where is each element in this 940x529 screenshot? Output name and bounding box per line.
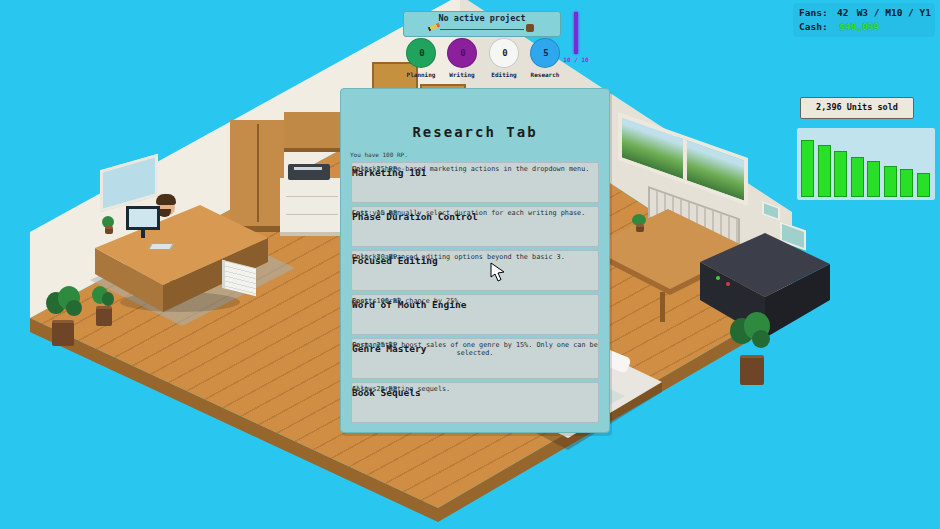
desk-plant-pot [105, 226, 113, 234]
phase-button-research[interactable]: 5 [530, 38, 560, 68]
phase-button-planning[interactable]: 0 [406, 38, 436, 68]
units-sold-label: 2,396 Units sold [801, 102, 913, 112]
research-item-cost: Cost: 25 RP [352, 385, 397, 393]
research-item-cost: Cost: 15 RP [352, 209, 397, 217]
mouse-cursor-icon [490, 262, 506, 282]
research-item-marketing-101[interactable]: Marketing 101 Unlocks hype-based marketi… [351, 162, 599, 203]
book-icon [526, 24, 534, 32]
project-title: No active project [403, 13, 561, 23]
phase-count: 0 [407, 48, 437, 58]
phase-button-editing[interactable]: 0 [489, 38, 519, 68]
sales-bar [801, 140, 814, 197]
phase-count: 0 [448, 48, 478, 58]
keyboard [148, 243, 174, 250]
cash-value: $40,039 [839, 21, 879, 32]
progress-track [440, 29, 524, 30]
table-plant-pot [636, 224, 644, 232]
research-panel-subtitle: You have 100 RP. [350, 151, 550, 158]
xp-bar [574, 12, 578, 54]
research-item-genre-mastery[interactable]: Genre Mastery Permanently boost sales of… [351, 338, 599, 379]
research-item-cost: Cost: 25 RP [352, 341, 397, 349]
research-item-book-sequels[interactable]: Book Sequels Allows creating sequels. Co… [351, 382, 599, 423]
research-item-word-of-mouth-engine[interactable]: Word of Mouth Engine Boosts viral chance… [351, 294, 599, 335]
plant-pot [740, 355, 764, 385]
research-item-cost: Cost: 25 RP [352, 165, 397, 173]
sales-bar [917, 173, 930, 197]
stats-hud: Fans: 42 W3 / M10 / Y1 Cash: $40,039 [793, 3, 935, 37]
sales-chart [797, 128, 935, 200]
research-item-cost: Cost: 100 RP [352, 297, 401, 305]
research-panel-title: Research Tab [340, 124, 610, 140]
date-display: W3 / M10 / Y1 [857, 7, 931, 18]
indicator-light [726, 282, 730, 286]
plant [66, 300, 82, 316]
sales-bar [851, 157, 864, 197]
monitor [126, 206, 160, 230]
phase-label-research: Research [517, 71, 573, 78]
character-hair [156, 194, 176, 205]
phase-count: 0 [490, 48, 520, 58]
fans-value: 42 [837, 7, 848, 18]
sales-bar [867, 161, 880, 197]
sales-bar [884, 166, 897, 197]
phase-button-writing[interactable]: 0 [447, 38, 477, 68]
wardrobe [230, 120, 284, 232]
research-item-phase-duration-control[interactable]: Phase Duration Control Lets you manually… [351, 206, 599, 247]
fans-label: Fans: [799, 7, 828, 18]
monitor-stand [141, 230, 145, 238]
sales-bar [818, 145, 831, 197]
research-item-cost: Cost: 20 RP [352, 253, 397, 261]
sales-bar [900, 169, 913, 197]
plant-pot [52, 320, 74, 346]
game-screen: No active project 0 Planning 0 Writing 0… [0, 0, 940, 529]
printer [288, 164, 330, 180]
units-sold-box: 2,396 Units sold [800, 97, 914, 119]
plant [752, 330, 770, 348]
research-item-focused-editing[interactable]: Focused Editing Unlocks advanced editing… [351, 250, 599, 291]
cash-label: Cash: [799, 21, 828, 32]
white-cabinet [280, 178, 344, 236]
upper-cabinet [284, 112, 346, 152]
indicator-light [716, 276, 720, 280]
plant [102, 292, 114, 306]
xp-label: 10 / 10 [552, 56, 600, 63]
plant-pot [96, 306, 112, 326]
table-leg [660, 292, 665, 322]
sales-bar [834, 151, 847, 197]
